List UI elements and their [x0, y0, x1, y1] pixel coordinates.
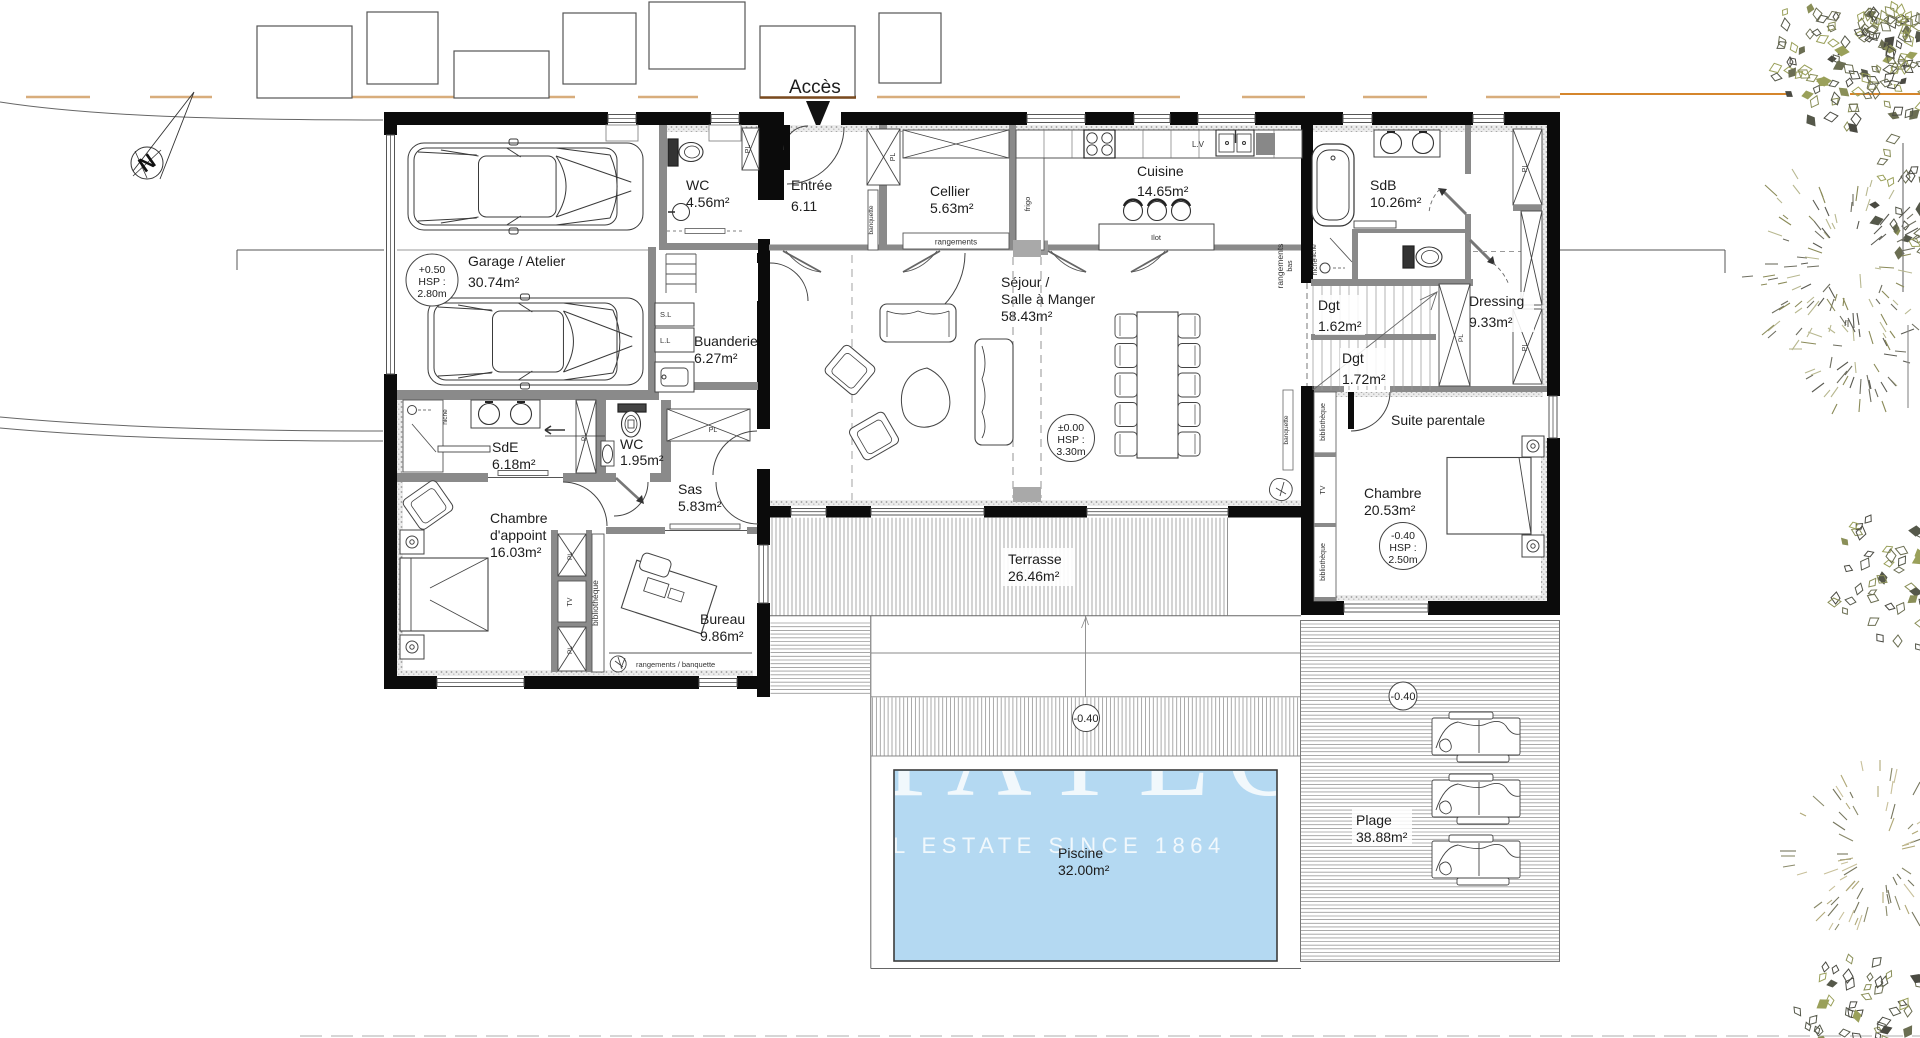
- svg-text:TV: TV: [567, 597, 574, 606]
- svg-text:-0.40: -0.40: [1073, 713, 1098, 725]
- svg-text:S.L: S.L: [660, 310, 671, 319]
- svg-text:PL: PL: [709, 427, 718, 434]
- svg-text:PL: PL: [567, 552, 574, 560]
- svg-text:6.18m²: 6.18m²: [492, 456, 536, 472]
- svg-text:bibliothèque: bibliothèque: [590, 580, 600, 626]
- svg-text:Suite parentale: Suite parentale: [1391, 412, 1485, 428]
- svg-text:Entrée: Entrée: [791, 177, 832, 193]
- svg-text:Dgt: Dgt: [1342, 350, 1364, 366]
- svg-text:PL: PL: [1522, 164, 1529, 173]
- svg-text:Cellier: Cellier: [930, 183, 970, 199]
- svg-text:banquette: banquette: [1283, 415, 1290, 444]
- svg-text:Dgt: Dgt: [1318, 297, 1340, 313]
- svg-text:5.83m²: 5.83m²: [678, 498, 722, 514]
- svg-text:rangements / banquette: rangements / banquette: [636, 660, 715, 669]
- svg-text:6.11: 6.11: [791, 198, 817, 214]
- svg-text:2.50m: 2.50m: [1388, 554, 1417, 566]
- svg-text:Piscine: Piscine: [1058, 845, 1103, 861]
- svg-text:1.95m²: 1.95m²: [620, 452, 664, 468]
- svg-text:9.33m²: 9.33m²: [1469, 314, 1513, 330]
- svg-text:rangements: rangements: [935, 238, 977, 247]
- svg-text:+0.50: +0.50: [419, 264, 446, 276]
- svg-text:Buanderie: Buanderie: [694, 333, 758, 349]
- svg-text:30.74m²: 30.74m²: [468, 274, 520, 290]
- svg-text:10.26m²: 10.26m²: [1370, 194, 1422, 210]
- svg-text:1.72m²: 1.72m²: [1342, 371, 1386, 387]
- svg-text:bibliothèque: bibliothèque: [1320, 543, 1327, 581]
- svg-text:SdE: SdE: [492, 439, 518, 455]
- svg-text:SdB: SdB: [1370, 177, 1396, 193]
- svg-text:frigo: frigo: [1023, 197, 1032, 212]
- svg-text:niche: niche: [1311, 244, 1318, 260]
- svg-text:Terrasse: Terrasse: [1008, 551, 1062, 567]
- svg-text:20.53m²: 20.53m²: [1364, 502, 1416, 518]
- svg-text:WC: WC: [686, 177, 709, 193]
- svg-text:58.43m²: 58.43m²: [1001, 308, 1053, 324]
- svg-text:Salle à Manger: Salle à Manger: [1001, 291, 1096, 307]
- svg-text:Dressing: Dressing: [1469, 293, 1524, 309]
- svg-text:Garage / Atelier: Garage / Atelier: [468, 253, 566, 269]
- svg-text:L.L: L.L: [660, 336, 670, 345]
- svg-text:Ilot: Ilot: [1151, 233, 1162, 242]
- svg-text:2.80m: 2.80m: [417, 288, 446, 300]
- svg-text:banquette: banquette: [868, 205, 875, 234]
- svg-text:bibliothèque: bibliothèque: [1320, 403, 1327, 441]
- svg-text:-0.40: -0.40: [1390, 691, 1415, 703]
- svg-text:5.63m²: 5.63m²: [930, 200, 974, 216]
- svg-text:3.30m: 3.30m: [1056, 446, 1085, 458]
- svg-text:rangements: rangements: [1275, 244, 1285, 289]
- svg-text:1.62m²: 1.62m²: [1318, 318, 1362, 334]
- svg-text:HSP :: HSP :: [418, 276, 445, 288]
- svg-text:Séjour /: Séjour /: [1001, 274, 1049, 290]
- svg-text:PL: PL: [1522, 343, 1529, 352]
- svg-text:L.V: L.V: [1192, 140, 1205, 149]
- svg-text:Chambre: Chambre: [1364, 485, 1422, 501]
- svg-text:HSP :: HSP :: [1389, 542, 1416, 554]
- svg-text:Plage: Plage: [1356, 812, 1392, 828]
- svg-text:HSP :: HSP :: [1057, 434, 1084, 446]
- svg-text:PL: PL: [567, 646, 574, 654]
- svg-text:±0.00: ±0.00: [1058, 422, 1084, 434]
- svg-text:WC: WC: [620, 436, 643, 452]
- svg-text:Accès: Accès: [789, 77, 841, 98]
- svg-text:38.88m²: 38.88m²: [1356, 829, 1408, 845]
- svg-text:PL: PL: [581, 433, 588, 441]
- svg-text:26.46m²: 26.46m²: [1008, 568, 1060, 584]
- svg-text:Cuisine: Cuisine: [1137, 163, 1184, 179]
- svg-text:6.27m²: 6.27m²: [694, 350, 738, 366]
- svg-text:d'appoint: d'appoint: [490, 527, 547, 543]
- svg-text:16.03m²: 16.03m²: [490, 544, 542, 560]
- svg-text:PL: PL: [745, 145, 752, 154]
- svg-text:32.00m²: 32.00m²: [1058, 862, 1110, 878]
- svg-text:-0.40: -0.40: [1391, 530, 1415, 542]
- svg-text:14.65m²: 14.65m²: [1137, 183, 1189, 199]
- svg-text:Sas: Sas: [678, 481, 702, 497]
- svg-text:9.86m²: 9.86m²: [700, 628, 744, 644]
- svg-text:4.56m²: 4.56m²: [686, 194, 730, 210]
- svg-text:bas: bas: [1287, 260, 1294, 272]
- svg-text:niche: niche: [1312, 259, 1319, 276]
- svg-text:TV: TV: [1320, 485, 1327, 494]
- svg-text:niche: niche: [442, 409, 449, 425]
- svg-text:Bureau: Bureau: [700, 611, 745, 627]
- svg-text:Chambre: Chambre: [490, 510, 548, 526]
- svg-text:PL: PL: [1458, 334, 1465, 342]
- svg-text:PL: PL: [890, 153, 897, 162]
